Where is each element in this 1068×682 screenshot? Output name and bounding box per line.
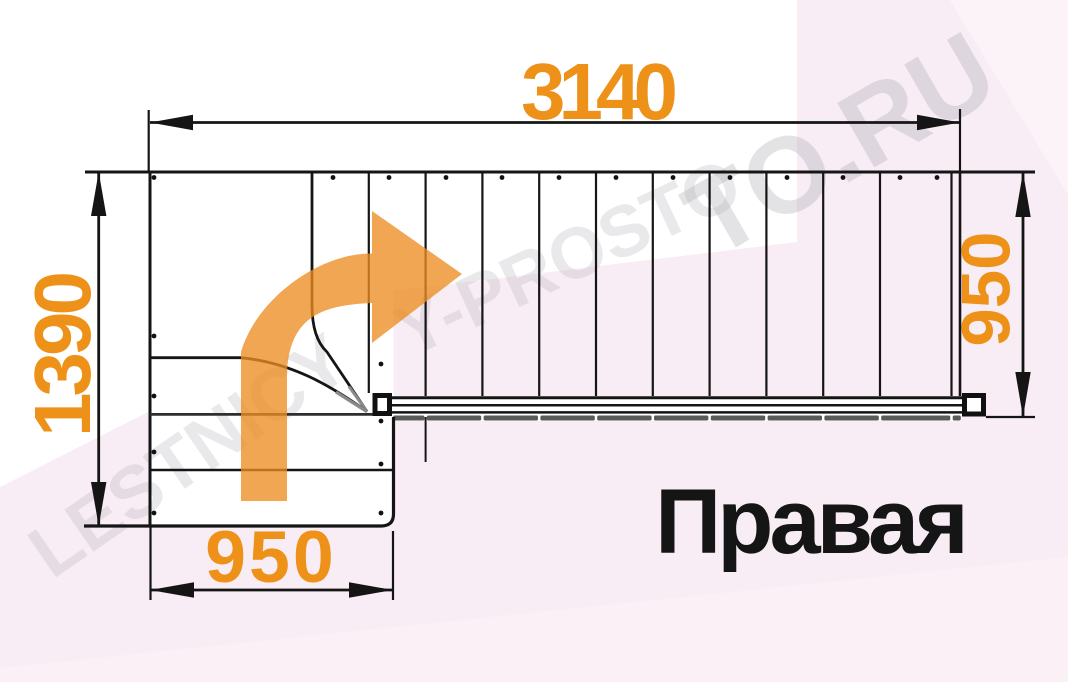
svg-text:950: 950 [205,515,337,598]
svg-text:1390: 1390 [18,274,107,437]
svg-text:3140: 3140 [521,47,675,136]
svg-text:Правая: Правая [655,471,965,573]
svg-text:950: 950 [948,231,1025,346]
